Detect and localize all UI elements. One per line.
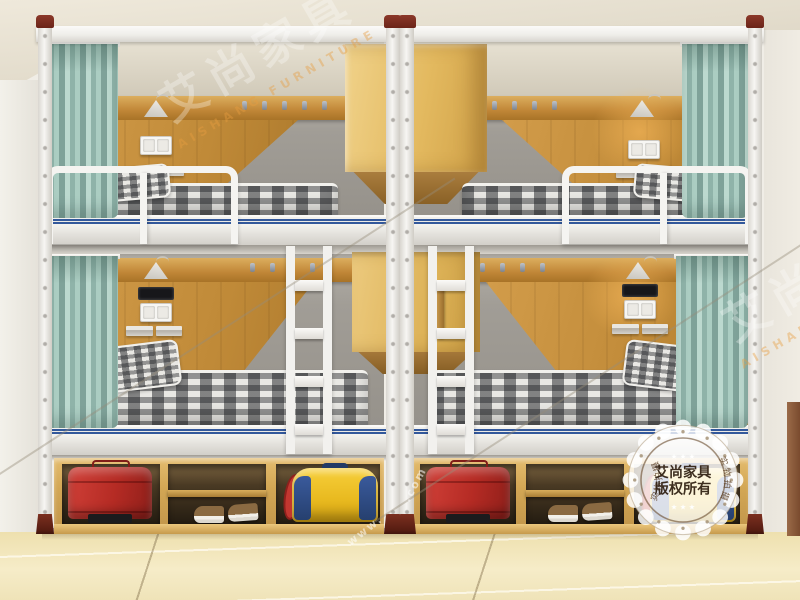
coat-hook-peg (540, 263, 545, 272)
coat-hook-peg (270, 263, 275, 272)
coat-hook-peg (262, 101, 267, 110)
ladder-rung (437, 424, 465, 435)
power-outlet (140, 136, 172, 155)
stamp-stars-bottom: ★ ★ ★ (671, 502, 696, 511)
shoe (194, 506, 224, 523)
outlet-hole (641, 303, 653, 316)
coat-hook-peg (520, 263, 525, 272)
coat-hook-peg (492, 101, 497, 110)
suitcase-wheels (88, 514, 132, 523)
post-foot (746, 514, 764, 534)
ladder-rung (437, 328, 465, 339)
outlet-hole (143, 306, 155, 319)
cubby-shelf (526, 490, 624, 497)
privacy-curtain-lower-right (676, 256, 748, 428)
coat-hook-peg (500, 263, 505, 272)
post-cap (746, 15, 764, 28)
usb-charge-panel (622, 284, 658, 297)
coat-hook-peg (302, 101, 307, 110)
post-cap (398, 15, 416, 28)
outlet-hole (157, 139, 169, 152)
guard-rail-upper-right (562, 166, 752, 244)
post-cap (36, 15, 54, 28)
wall-shelves (126, 326, 182, 336)
ladder-rung (295, 424, 323, 435)
stamp-stars-top: ★ ★ ★ (671, 452, 696, 461)
coat-hook-peg (282, 101, 287, 110)
suitcase-red (426, 467, 510, 519)
door-frame-edge (787, 402, 800, 536)
frame-post-center-b (400, 26, 414, 532)
stamp-title: 艾尚家具 (655, 464, 712, 481)
product-photo-canvas: 艾尚家具 AISHANG FURNITURE 艾尚家具 AISHANG FURN… (0, 0, 800, 600)
ladder-rung (295, 280, 323, 291)
coat-hook-peg (552, 101, 557, 110)
coat-hook-peg (532, 101, 537, 110)
bag-side-panel (294, 476, 311, 520)
post-foot (398, 514, 416, 534)
guard-rail-baluster (140, 173, 147, 244)
coat-hook-peg (250, 263, 255, 272)
ladder-rung (295, 376, 323, 387)
frame-post-center-a (386, 26, 400, 532)
suitcase-wheels (446, 514, 490, 523)
wall-shelf (612, 324, 639, 334)
bag-side-panel (359, 476, 376, 520)
outlet-hole (627, 303, 639, 316)
wall-shelves (612, 324, 668, 334)
ladder-right (428, 246, 474, 454)
stamp-subtitle: 版权所有 (655, 481, 712, 498)
coat-hook-peg (242, 101, 247, 110)
hanging-cabinet-top (345, 44, 487, 172)
coat-hook-peg (322, 101, 327, 110)
cubby-base-board (54, 524, 384, 534)
shoe (227, 503, 258, 522)
ladder-rung (295, 328, 323, 339)
outlet-hole (143, 139, 155, 152)
shoe (548, 505, 578, 522)
frame-post-left (38, 26, 52, 532)
guard-rail-baluster (660, 173, 667, 244)
power-outlet (624, 300, 656, 319)
coat-hook-peg (512, 101, 517, 110)
lamp-arm (648, 94, 661, 106)
coat-hook-peg (480, 263, 485, 272)
outlet-hole (631, 143, 643, 156)
shoe (581, 502, 612, 521)
usb-charge-panel (138, 287, 174, 300)
ladder-rung (437, 376, 465, 387)
outlet-hole (157, 306, 169, 319)
wall-shelf (126, 326, 153, 336)
cubby-shelf (168, 490, 266, 497)
ladder-rung (437, 280, 465, 291)
suitcase-red (68, 467, 152, 519)
outlet-hole (645, 143, 657, 156)
copyright-stamp: 实物拍摄 实物拍摄 ★ ★ ★ 艾尚家具 版权所有 ★ ★ ★ (620, 417, 746, 543)
power-outlet (628, 140, 660, 159)
ladder-left (286, 246, 332, 454)
power-outlet (140, 303, 172, 322)
post-foot (36, 514, 54, 534)
wall-shelf (156, 326, 183, 336)
